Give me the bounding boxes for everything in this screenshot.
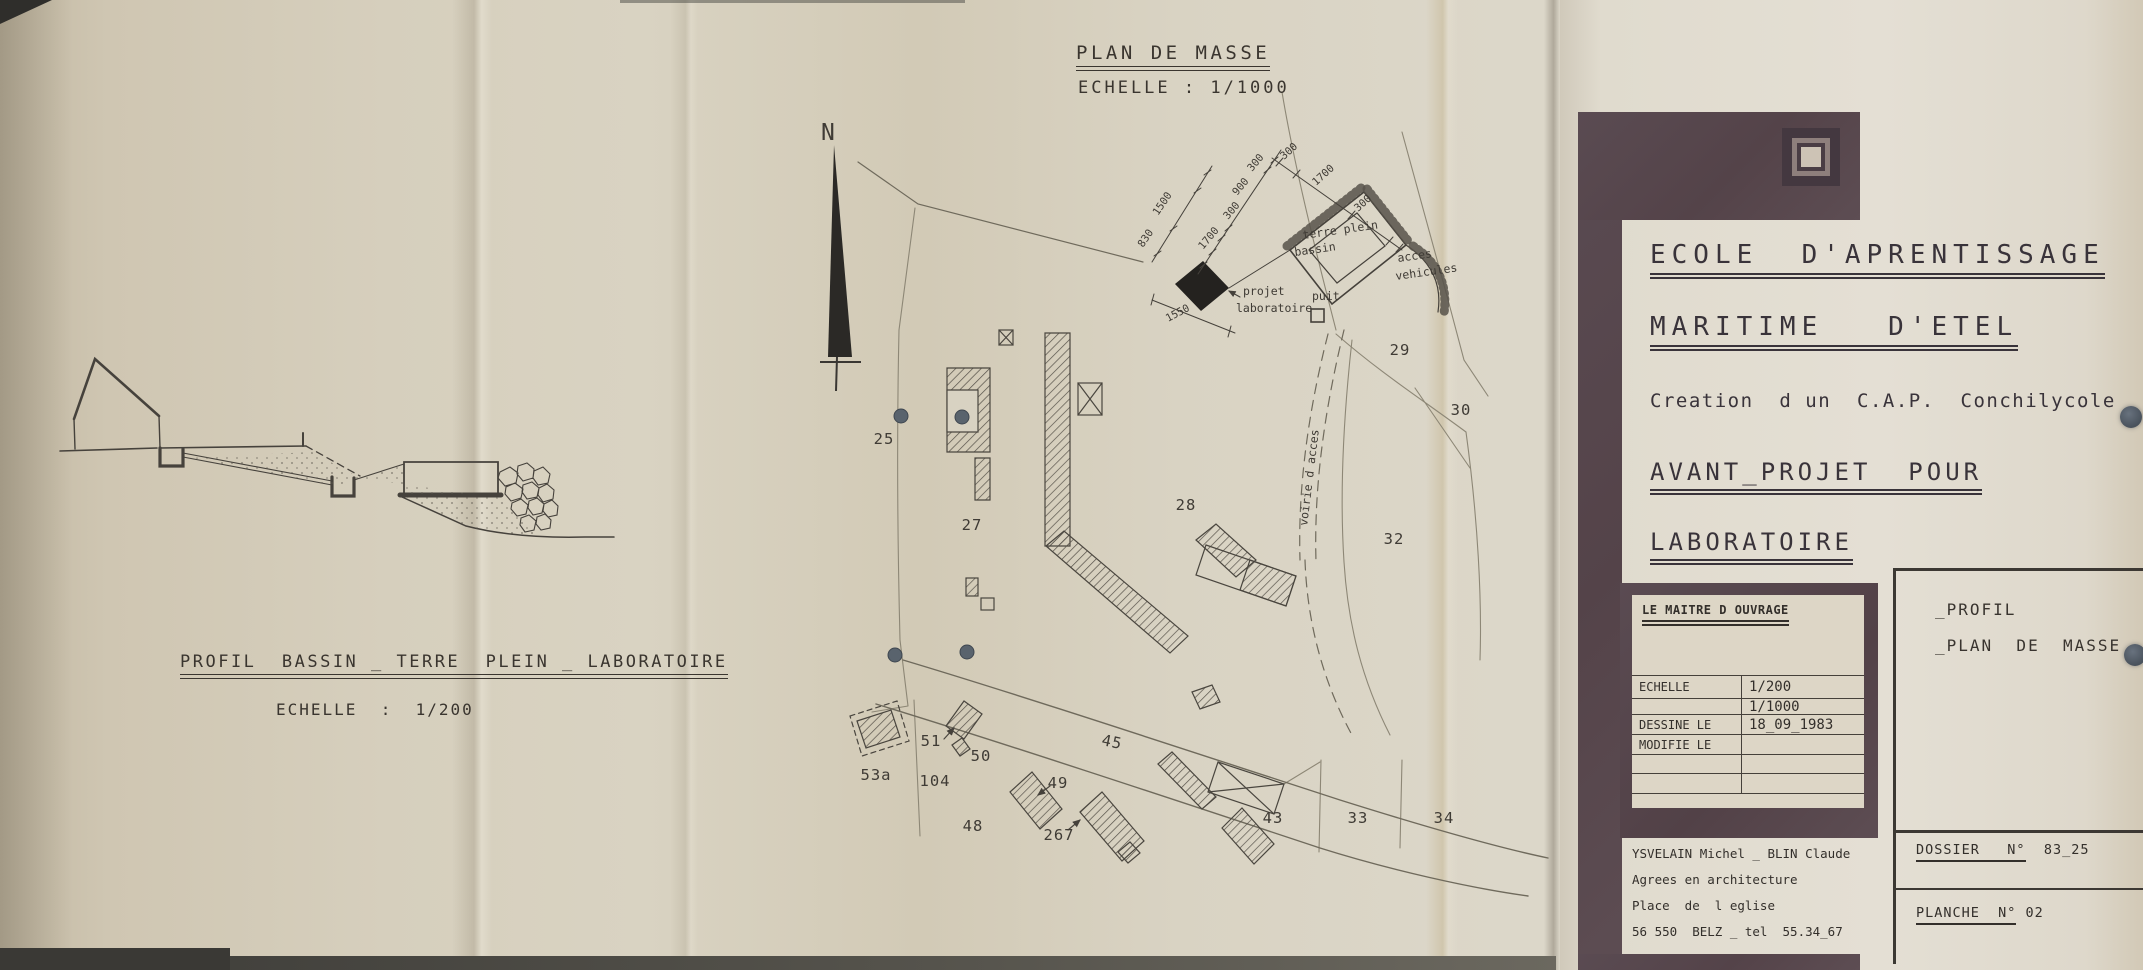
quay-walls [1045, 333, 1296, 653]
plan-de-masse-title: PLAN DE MASSE [1076, 42, 1270, 67]
well-square [1311, 309, 1324, 322]
parcel-32: 32 [1384, 530, 1405, 548]
table-row [1632, 755, 1864, 774]
project-title-line4: AVANT_PROJET POUR [1650, 458, 1982, 491]
parcel-30: 30 [1451, 401, 1472, 419]
table-row: MODIFIE LE [1632, 735, 1864, 755]
profile-house-walls [74, 416, 160, 449]
svg-text:1550: 1550 [1164, 302, 1192, 324]
sheet-content-plan-de-masse: _PLAN DE MASSE [1935, 636, 2121, 655]
svg-text:300: 300 [1278, 141, 1300, 163]
parcel-51: 51 [921, 732, 942, 750]
profile-title: PROFIL BASSIN _ TERRE PLEIN _ LABORATOIR… [180, 652, 728, 675]
parcel-267: 267 [1044, 826, 1075, 844]
parcel-48: 48 [963, 817, 984, 835]
planche-number: PLANCHE N° 02 [1916, 905, 2044, 925]
parcel-33: 33 [1348, 809, 1369, 827]
table-row: ECHELLE 1/200 [1632, 676, 1864, 699]
svg-text:830: 830 [1136, 227, 1157, 249]
north-arrow: N [820, 120, 861, 391]
architect-city-phone: 56 550 BELZ _ tel 55.34_67 [1632, 924, 1870, 939]
svg-text:1700: 1700 [1310, 162, 1337, 188]
owner-table-header: LE MAITRE D OUVRAGE [1642, 603, 1789, 622]
svg-text:300: 300 [1245, 152, 1266, 174]
architect-role: Agrees en architecture [1632, 872, 1870, 887]
panel-logo-core [1801, 147, 1821, 167]
label-laboratoire: laboratoire [1236, 301, 1312, 315]
sheet-content-profil: _PROFIL [1935, 600, 2016, 619]
project-subtitle: Creation d un C.A.P. Conchilycole [1650, 390, 2116, 412]
parcel-53a: 53a [861, 766, 892, 784]
site-plan [850, 92, 1548, 896]
parcel-49: 49 [1048, 774, 1069, 792]
parcel-104: 104 [920, 772, 951, 790]
parcel-29: 29 [1390, 341, 1411, 359]
label-voie-acces: voirie d acces [1296, 429, 1322, 527]
table-bottom-strip [1632, 794, 1864, 801]
table-row: 1/1000 [1632, 699, 1864, 715]
panel-frame-left [1578, 112, 1622, 970]
parcel-28: 28 [1176, 496, 1197, 514]
profile-pit-1 [160, 448, 183, 466]
parcel-45: 45 [1100, 731, 1124, 753]
table-row: DESSINE LE 18_09_1983 [1632, 715, 1864, 735]
svg-text:300: 300 [1221, 200, 1242, 222]
panel-frame-bottom [1578, 954, 1860, 970]
architect-address: Place de l eglise [1632, 898, 1870, 913]
plan-labels: terre plein bassin acces vehicules proje… [1236, 218, 1458, 527]
profile-house-roof [74, 359, 159, 419]
project-title-line2: MARITIME D'ETEL [1650, 312, 2018, 347]
svg-text:1500: 1500 [1151, 190, 1175, 218]
table-row [1632, 774, 1864, 794]
label-puit: puit [1312, 289, 1340, 303]
sheet-box-top-line [1893, 568, 2143, 571]
parcel-27: 27 [962, 516, 983, 534]
dossier-top-line [1893, 830, 2143, 833]
architect-names: YSVELAIN Michel _ BLIN Claude [1632, 846, 1870, 861]
owner-table-rows: ECHELLE 1/200 1/1000 DESSINE LE 18_09_19… [1632, 675, 1864, 801]
project-title-line1: ECOLE D'APRENTISSAGE [1650, 240, 2105, 275]
label-projet: projet [1243, 284, 1285, 298]
architects-block: YSVELAIN Michel _ BLIN Claude Agrees en … [1632, 846, 1870, 950]
parcel-43: 43 [1263, 809, 1284, 827]
profile-scale: ECHELLE : 1/200 [276, 700, 474, 719]
profile-drawing [60, 359, 614, 538]
parcel-50: 50 [971, 747, 992, 765]
parcel-25: 25 [874, 430, 895, 448]
punch-hole [2124, 644, 2143, 666]
svg-text:900: 900 [1230, 176, 1251, 198]
owner-table: LE MAITRE D OUVRAGE ECHELLE 1/200 1/1000… [1632, 595, 1864, 808]
dossier-number: DOSSIER N° 83_25 [1916, 842, 2089, 862]
owner-table-frame: LE MAITRE D OUVRAGE ECHELLE 1/200 1/1000… [1620, 583, 1878, 838]
planche-top-line [1893, 888, 2143, 890]
sheet-box-border [1893, 568, 1896, 964]
parcel-34: 34 [1434, 809, 1455, 827]
svg-text:1700: 1700 [1196, 225, 1221, 252]
project-title-line5: LABORATOIRE [1650, 528, 1853, 561]
north-label: N [821, 120, 835, 146]
punch-hole [2120, 406, 2142, 428]
plan-de-masse-scale: ECHELLE : 1/1000 [1078, 78, 1290, 98]
